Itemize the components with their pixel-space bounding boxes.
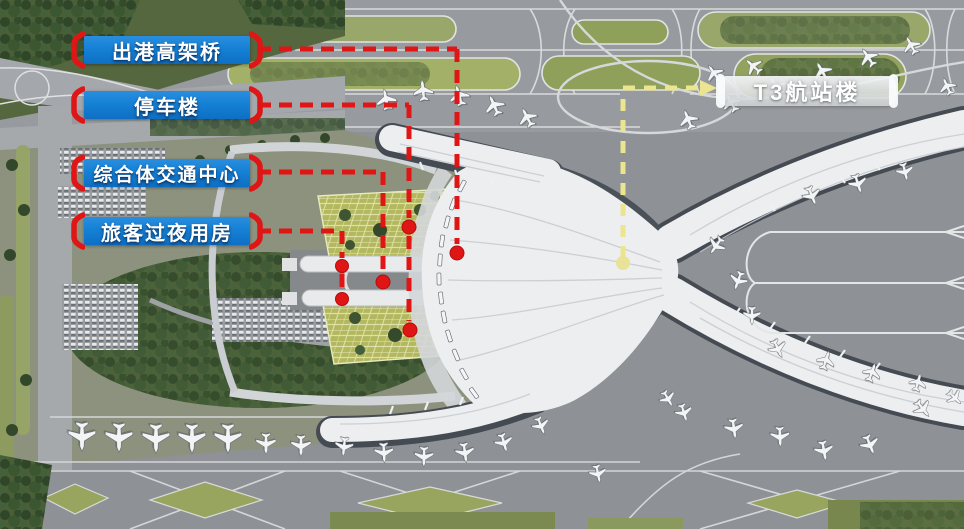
callout-parking-building: 停车楼	[84, 91, 250, 119]
callout-departure-viaduct: 出港高架桥	[84, 36, 250, 64]
dot-hotel-north	[336, 260, 349, 273]
callout-transport-center: 综合体交通中心	[84, 159, 250, 187]
dot-hotel-south	[336, 293, 349, 306]
callout-label: 停车楼	[134, 91, 200, 120]
t3-leader-dot	[616, 256, 630, 270]
terminal-t3-label-text: T3航站楼	[754, 75, 861, 107]
dot-parking-south	[403, 323, 417, 337]
callout-bracket-right	[249, 31, 265, 69]
callout-overnight-rooms: 旅客过夜用房	[84, 217, 250, 245]
callout-label: 综合体交通中心	[93, 160, 240, 187]
dot-gtc	[376, 275, 390, 289]
callout-label: 旅客过夜用房	[101, 217, 233, 246]
callout-bracket-right	[249, 212, 265, 250]
callout-bracket-right	[249, 86, 265, 124]
callout-bracket-left	[69, 212, 85, 250]
callout-bracket-left	[69, 86, 85, 124]
dot-viaduct	[450, 246, 464, 260]
callout-bracket-left	[69, 154, 85, 192]
callout-bracket-right	[249, 154, 265, 192]
terminal-t3-label: T3航站楼	[718, 76, 896, 106]
callout-label: 出港高架桥	[112, 36, 222, 65]
callout-bracket-left	[69, 31, 85, 69]
aerial-site-plan: 出港高架桥 停车楼 综合体交通中心 旅客过夜用房 T3航站楼	[0, 0, 964, 529]
dot-parking-north	[402, 220, 416, 234]
